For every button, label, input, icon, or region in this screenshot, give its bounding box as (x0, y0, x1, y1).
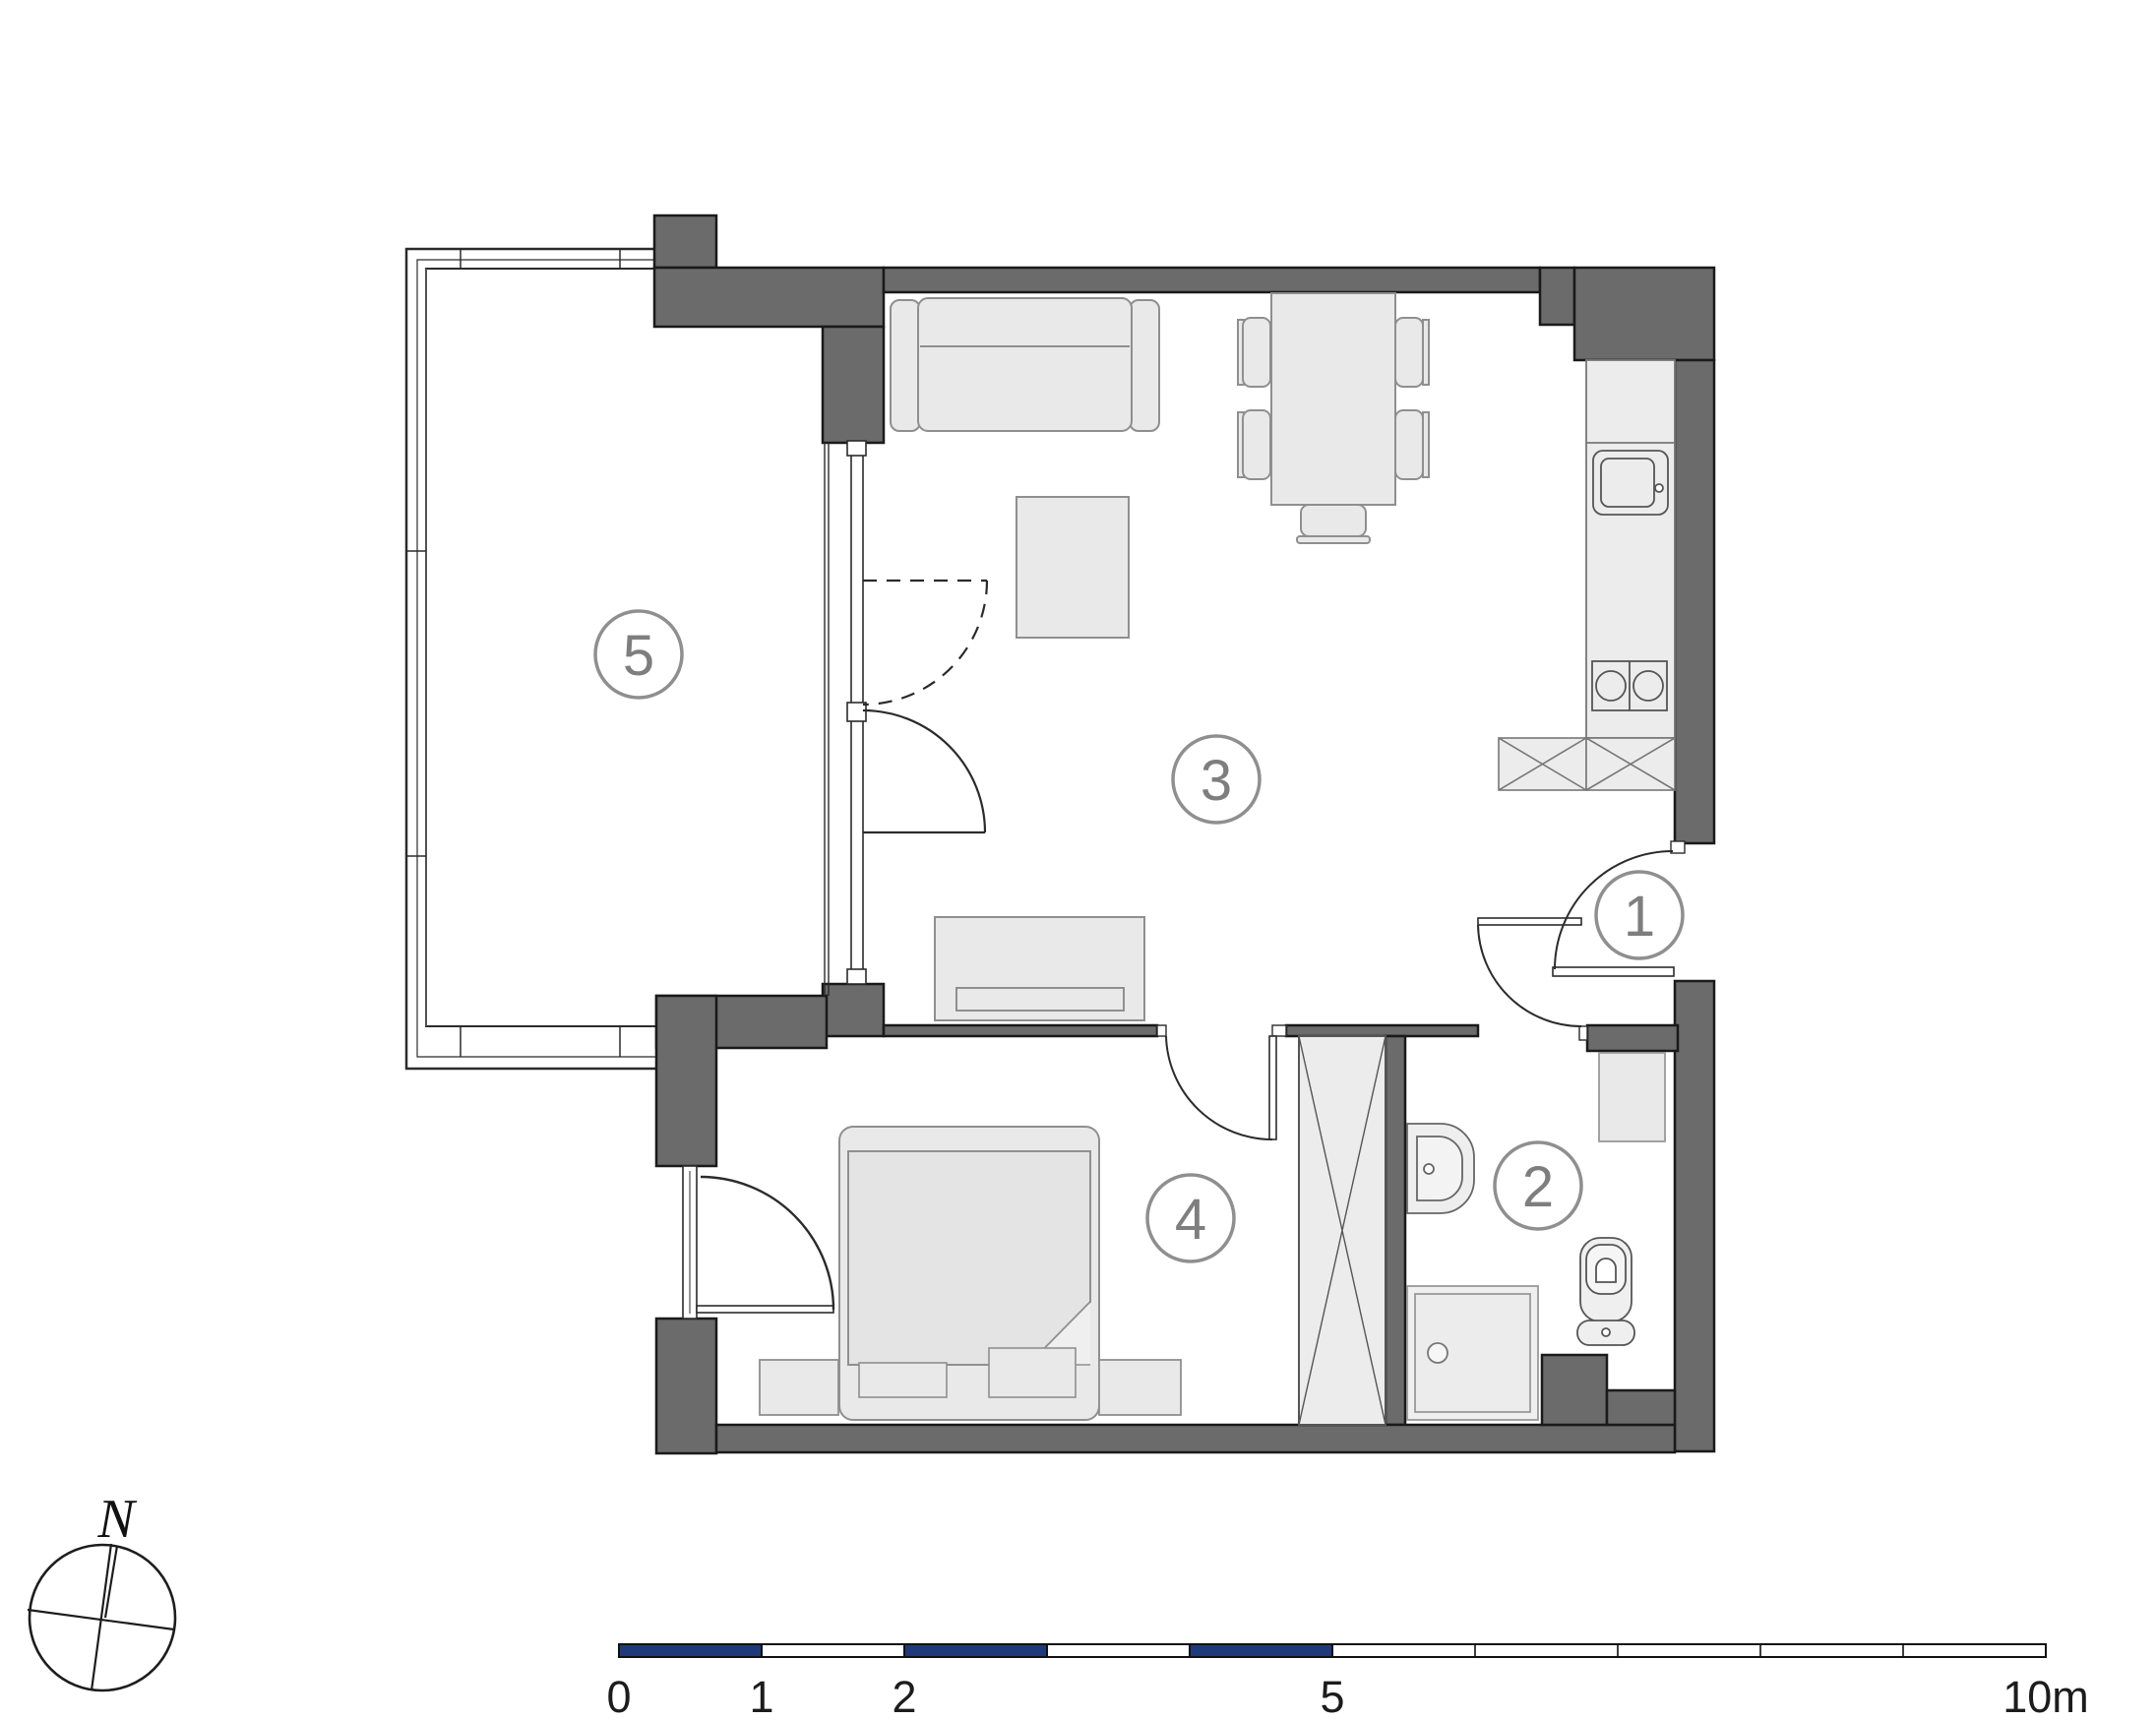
wall-right-lower (1675, 981, 1714, 1451)
scale-label-10m: 10m (2002, 1672, 2089, 1720)
scale-segment-filled (1190, 1644, 1332, 1657)
room4-door-swing-icon (1157, 1025, 1286, 1139)
scale-label-0: 0 (606, 1672, 631, 1720)
wall-bedroom-west-bottom (656, 1319, 716, 1453)
floor-plan-canvas: 1 2 3 4 5 N 0 1 2 (0, 0, 2156, 1720)
room-label-2: 2 (1495, 1142, 1581, 1229)
wall-corner-block (1574, 268, 1714, 360)
bedroom-door-swing-icon (683, 1166, 833, 1319)
wall-top-thick (654, 268, 884, 327)
wall-top-thin (884, 268, 1540, 292)
window-frame-block (847, 441, 866, 456)
room-3-number: 3 (1201, 749, 1232, 813)
room-1-number: 1 (1624, 885, 1655, 949)
room-label-1: 1 (1596, 872, 1683, 958)
wall-bottom (716, 1425, 1675, 1452)
room-label-3: 3 (1173, 736, 1260, 823)
wall-bath-se (1607, 1390, 1675, 1425)
north-compass-icon: N (28, 1489, 175, 1690)
wall-room34 (884, 1025, 1157, 1036)
scale-label-1: 1 (749, 1672, 773, 1720)
wall-bottom-step (1542, 1355, 1607, 1425)
chair-icon (1395, 410, 1423, 479)
kitchen-sink-icon (1593, 451, 1668, 515)
scale-segment-filled (904, 1644, 1047, 1657)
north-label: N (96, 1489, 137, 1550)
bathroom-door-swing-icon (1478, 918, 1587, 1040)
wardrobe-icon (1299, 1036, 1386, 1425)
exterior-walls (654, 215, 1714, 1453)
chair-icon (1243, 410, 1270, 479)
entrance-threshold (1553, 967, 1674, 976)
room-5-number: 5 (623, 624, 654, 688)
wall-right-upper (1675, 360, 1714, 843)
toilet-icon (1577, 1238, 1634, 1345)
bench-icon (760, 1360, 838, 1415)
tv-icon (956, 988, 1124, 1011)
room-4-number: 4 (1175, 1188, 1206, 1252)
bed-icon (839, 1127, 1099, 1420)
cabinet-icon (1599, 1053, 1665, 1141)
base-cabinet-icon (1499, 738, 1675, 790)
kitchen-counter-icon (1586, 360, 1675, 738)
wall-living-west (823, 327, 884, 443)
room-label-5: 5 (595, 611, 682, 698)
chair-icon (1243, 318, 1270, 387)
scale-segment-filled (619, 1644, 762, 1657)
cooktop-icon (1592, 661, 1667, 710)
wall-top-stub (654, 215, 716, 268)
chair-icon (1301, 505, 1366, 536)
wall-bath-west (1386, 1036, 1405, 1425)
wall-bath-north (1587, 1025, 1678, 1051)
balcony-door-swing-icon (863, 581, 987, 832)
dining-set (1238, 293, 1429, 543)
wall-room14 (1286, 1025, 1478, 1036)
scale-label-2: 2 (892, 1672, 916, 1720)
coffee-table-icon (1016, 497, 1129, 638)
room-2-number: 2 (1522, 1155, 1554, 1219)
chair-icon (1297, 536, 1370, 543)
wall-corner-step (1540, 268, 1574, 325)
wall-junction-block (823, 984, 884, 1036)
tv-sideboard-icon (935, 917, 1144, 1020)
entrance-door-swing-icon (1553, 841, 1685, 976)
sofa-icon (891, 298, 1159, 431)
room-label-4: 4 (1147, 1175, 1234, 1261)
scale-label-5: 5 (1320, 1672, 1344, 1720)
chair-icon (1395, 318, 1423, 387)
shower-icon (1407, 1286, 1538, 1420)
dining-table-icon (1271, 293, 1395, 505)
balcony-glazing (406, 249, 656, 1069)
window-frame-block (847, 969, 866, 984)
balcony-window-wall (825, 441, 866, 996)
scale-bar-icon: 0 1 2 5 10m (606, 1644, 2088, 1720)
bench-icon (1099, 1360, 1181, 1415)
floor-plan-page: 1 2 3 4 5 N 0 1 2 (0, 0, 2156, 1720)
washbasin-icon (1407, 1124, 1474, 1213)
wall-bedroom-west-top (656, 996, 716, 1166)
